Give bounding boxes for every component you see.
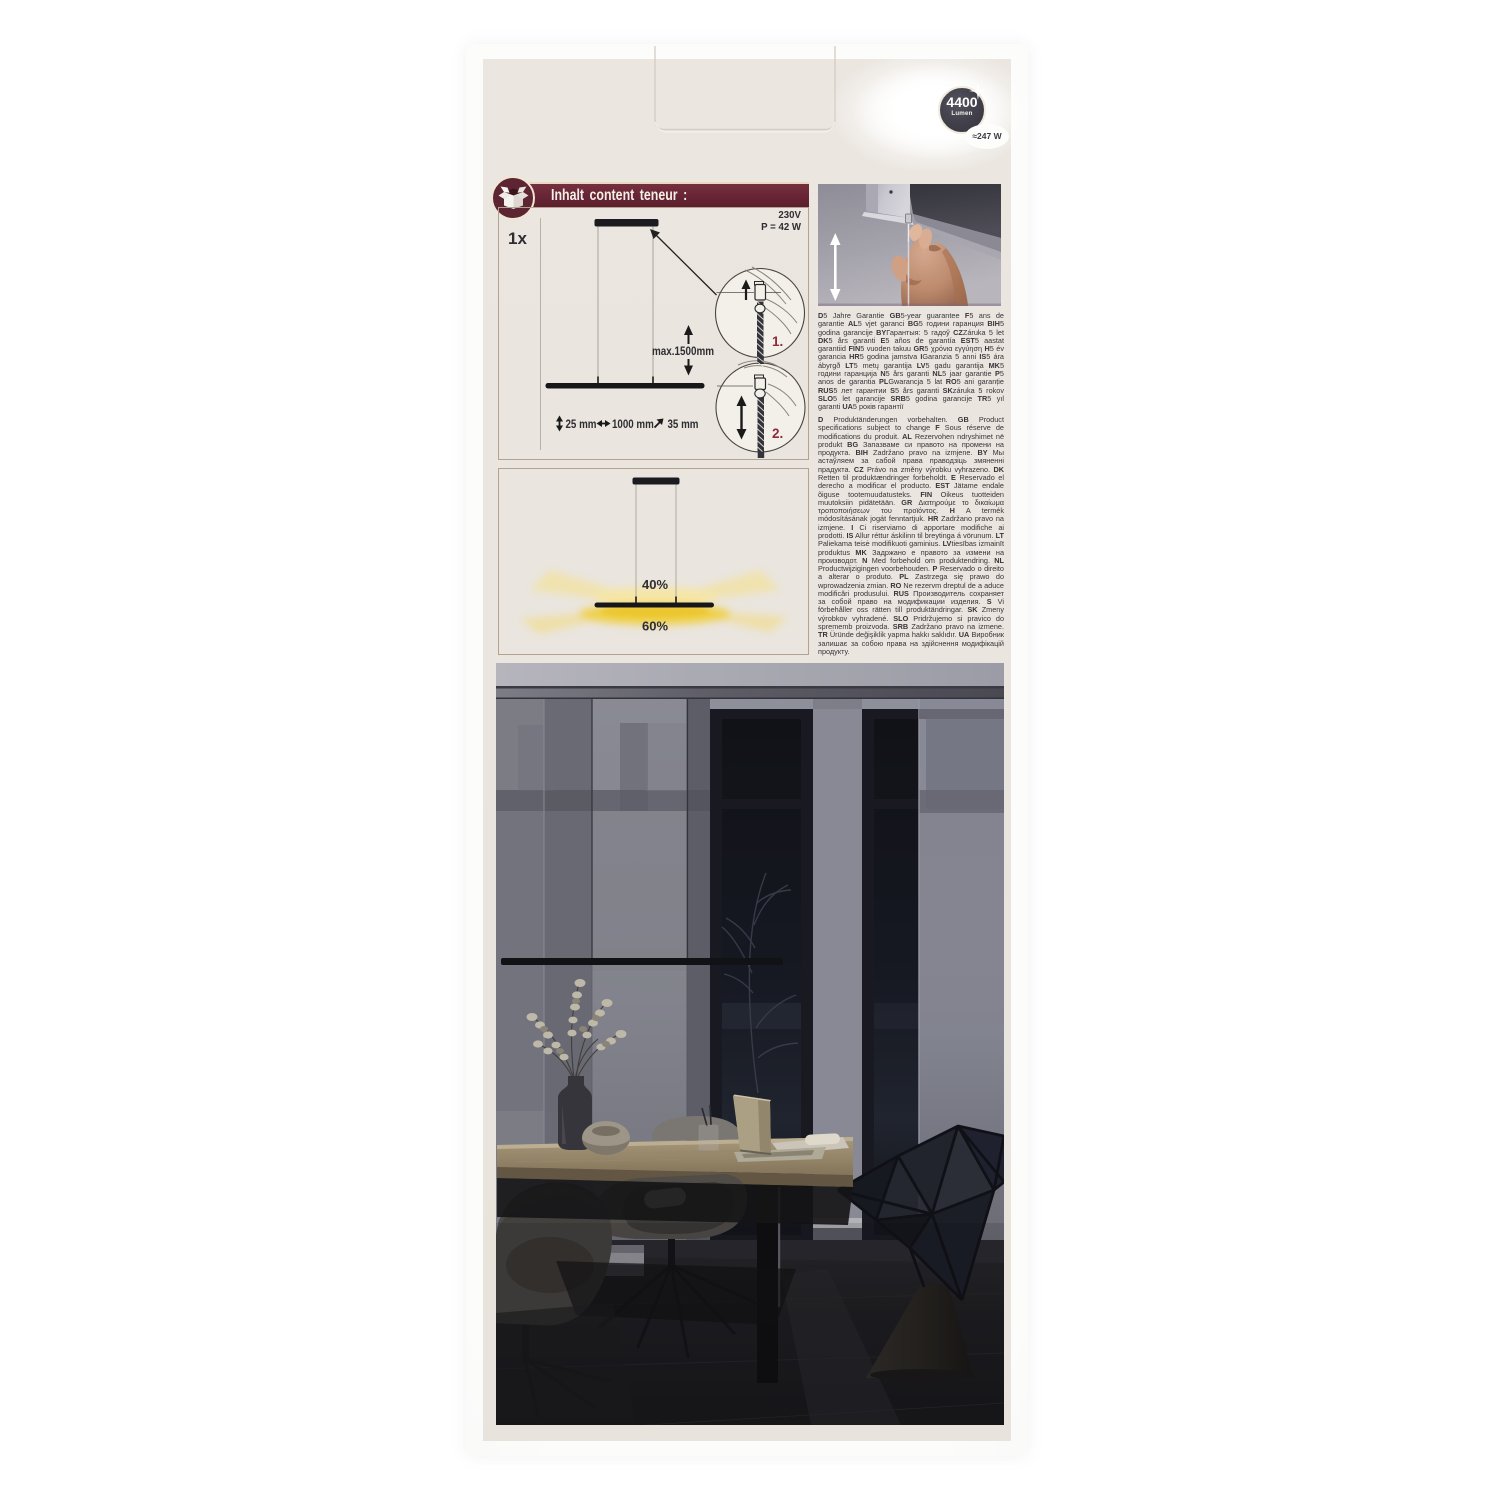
- svg-text:2.: 2.: [772, 426, 783, 441]
- svg-text:60%: 60%: [641, 619, 667, 634]
- svg-text:35 mm: 35 mm: [667, 418, 698, 431]
- svg-text:25 mm: 25 mm: [565, 418, 596, 431]
- svg-text:1000 mm: 1000 mm: [612, 418, 654, 431]
- svg-text:1.: 1.: [772, 334, 783, 349]
- svg-text:max.1500mm: max.1500mm: [651, 345, 713, 358]
- svg-text:40%: 40%: [641, 577, 667, 592]
